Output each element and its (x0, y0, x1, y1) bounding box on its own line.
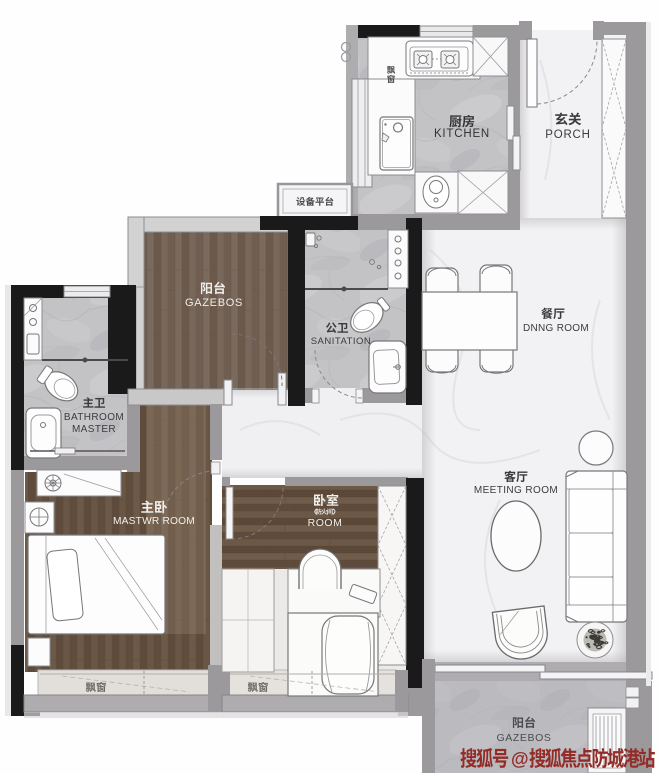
svg-text:GAZEBOS: GAZEBOS (185, 297, 243, 309)
svg-text:MASTWR ROOM: MASTWR ROOM (113, 516, 195, 527)
svg-text:@: @ (511, 749, 529, 769)
svg-text:ROOM: ROOM (308, 517, 343, 529)
svg-text:PORCH: PORCH (545, 129, 591, 141)
svg-text:BATHROOM: BATHROOM (64, 412, 124, 423)
svg-text:SANITATION: SANITATION (311, 336, 372, 347)
svg-text:GAZEBOS: GAZEBOS (497, 732, 552, 744)
svg-text:DNNG ROOM: DNNG ROOM (523, 323, 589, 334)
svg-text:MEETING ROOM: MEETING ROOM (474, 485, 558, 496)
svg-text:MASTER: MASTER (72, 424, 116, 435)
svg-text:KITCHEN: KITCHEN (434, 128, 490, 140)
